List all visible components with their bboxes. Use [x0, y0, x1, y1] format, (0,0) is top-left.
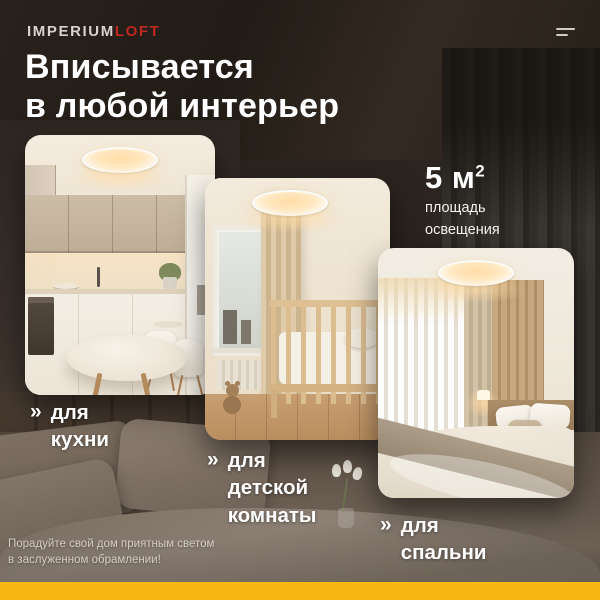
building-silhouette	[223, 310, 237, 344]
teddy-bear-ear	[225, 381, 230, 386]
chevron-right-icon: »	[207, 447, 219, 529]
plant-pot	[163, 277, 177, 289]
ceiling-lamp-product	[82, 147, 158, 173]
chevron-right-icon: »	[30, 399, 42, 454]
building-silhouette	[241, 320, 251, 344]
accent-bottom-bar	[0, 582, 600, 600]
footer-note-line1: Порадуйте свой дом приятным светом	[8, 536, 214, 552]
ceiling-lamp-product	[252, 190, 328, 216]
stat-value: 5 м2	[425, 160, 500, 196]
window-glass	[219, 232, 265, 350]
page-title-line2: в любой интерьер	[25, 87, 339, 126]
label-line: комнаты	[228, 502, 317, 529]
label-line: кухни	[51, 426, 109, 453]
teddy-bear	[223, 396, 241, 414]
promo-banner: IMPERIUMLOFT Вписывается в любой интерье…	[0, 0, 600, 600]
page-title: Вписывается в любой интерьер	[25, 48, 339, 126]
crib-rail	[269, 384, 387, 392]
stat-caption-line1: площадь	[425, 198, 500, 220]
label-for-kids-room: » для детской комнаты	[207, 447, 316, 529]
dining-table	[67, 335, 187, 381]
table-dish	[153, 321, 183, 328]
oven	[28, 297, 54, 355]
brand-logo-accent: LOFT	[115, 23, 161, 40]
kitchen-upper-cabinets	[25, 195, 187, 253]
ceiling-lamp-product	[438, 260, 514, 286]
bedside-lamp	[477, 390, 490, 400]
footer-note-line2: в заслуженном обрамлении!	[8, 552, 214, 568]
faucet	[97, 267, 100, 287]
lighting-area-stat: 5 м2 площадь освещения	[425, 160, 500, 242]
brand-logo: IMPERIUMLOFT	[27, 23, 160, 40]
label-line: спальни	[401, 539, 487, 566]
bedroom-photo-card	[378, 248, 574, 498]
page-title-line1: Вписывается	[25, 48, 339, 87]
window-sill	[211, 348, 267, 353]
menu-bar	[556, 34, 568, 36]
label-line: для	[228, 447, 317, 474]
brand-logo-primary: IMPERIUM	[27, 23, 115, 40]
stat-number: 5 м	[425, 160, 475, 195]
teddy-bear-ear	[235, 381, 240, 386]
stat-superscript: 2	[475, 162, 485, 181]
label-for-bedroom: » для спальни	[380, 512, 486, 567]
stat-caption: площадь освещения	[425, 198, 500, 242]
hamburger-menu-icon[interactable]	[556, 28, 575, 39]
menu-bar	[556, 28, 575, 30]
label-for-kitchen: » для кухни	[30, 399, 109, 454]
footer-note: Порадуйте свой дом приятным светом в зас…	[8, 536, 214, 568]
kids-room-photo-card	[205, 178, 390, 440]
crib-leg	[271, 390, 277, 418]
label-line: детской	[228, 474, 317, 501]
label-line: для	[51, 399, 109, 426]
crib-rail	[269, 300, 387, 307]
stat-caption-line2: освещения	[425, 220, 500, 242]
kitchen-photo-card	[25, 135, 215, 395]
label-line: для	[401, 512, 487, 539]
chevron-right-icon: »	[380, 512, 392, 567]
